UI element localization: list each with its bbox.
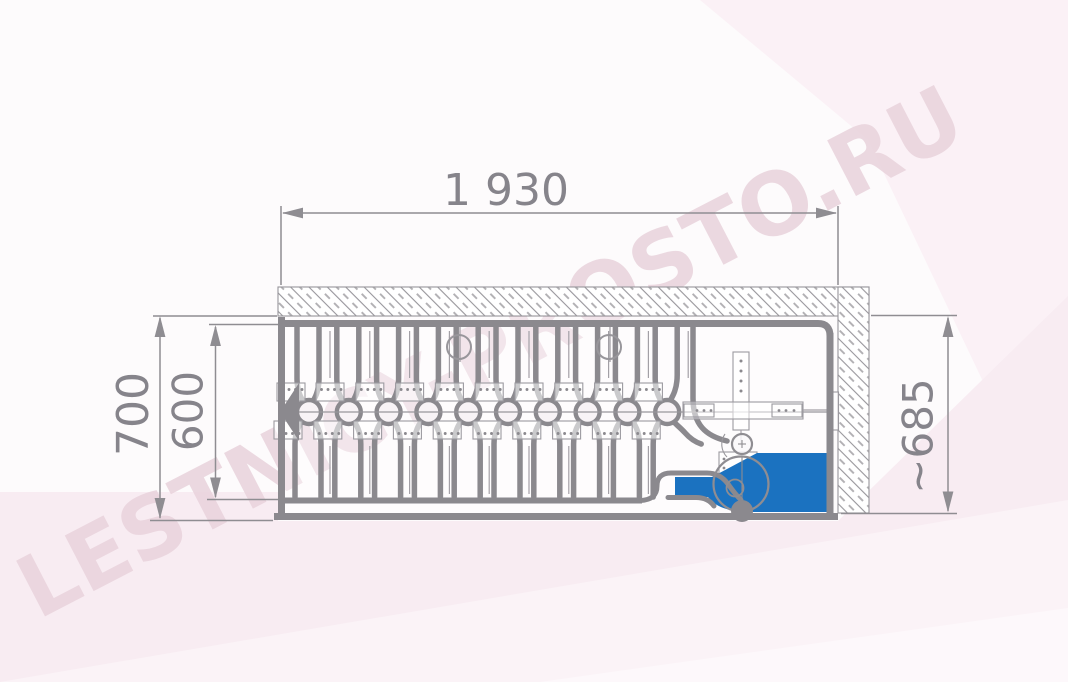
rivet-dot	[565, 388, 568, 391]
rivet-dot	[404, 432, 407, 435]
rivet-dot	[479, 388, 482, 391]
rivet-dot	[320, 388, 323, 391]
rivet-dot	[785, 409, 788, 412]
rivet-dot	[366, 388, 369, 391]
step-plate	[396, 383, 424, 401]
rivet-dot	[526, 388, 529, 391]
rivet-dot	[439, 388, 442, 391]
rivet-dot	[616, 432, 619, 435]
rivet-dot	[457, 432, 460, 435]
rivet-dot	[618, 388, 621, 391]
rivet-dot	[578, 388, 581, 391]
rivet-dot	[490, 432, 493, 435]
rivet-dot	[400, 388, 403, 391]
step-plate	[435, 383, 463, 401]
rivet-dot	[649, 432, 652, 435]
step-plate	[314, 421, 342, 439]
step-plate	[632, 421, 660, 439]
step-plate	[592, 421, 620, 439]
rivet-dot	[645, 388, 648, 391]
rivet-dot	[437, 432, 440, 435]
rivet-dot	[599, 388, 602, 391]
rivet-dot	[497, 432, 500, 435]
rivet-dot	[563, 432, 566, 435]
rivet-dot	[609, 432, 612, 435]
step-plate	[433, 421, 461, 439]
rivet-dot	[710, 409, 713, 412]
rivet-dot	[452, 388, 455, 391]
rivet-dot	[532, 388, 535, 391]
rivet-dot	[301, 388, 304, 391]
rivet-dot	[340, 388, 343, 391]
ladder-mechanism-drawing	[274, 287, 869, 522]
rivet-dot	[477, 432, 480, 435]
rivet-dot	[492, 388, 495, 391]
rivet-dot	[337, 432, 340, 435]
rivet-dot	[740, 360, 743, 363]
step-plate	[513, 421, 541, 439]
rivet-dot	[413, 388, 416, 391]
rivet-dot	[536, 432, 539, 435]
dim-outer-width-label: 700	[108, 372, 159, 456]
rivet-dot	[519, 388, 522, 391]
rivet-dot	[778, 409, 781, 412]
rivet-dot	[288, 388, 291, 391]
rivet-dot	[539, 388, 542, 391]
rivet-dot	[373, 388, 376, 391]
rivet-dot	[696, 409, 699, 412]
rivet-dot	[318, 432, 321, 435]
rivet-dot	[603, 432, 606, 435]
rivet-dot	[740, 380, 743, 383]
rivet-dot	[499, 388, 502, 391]
rivet-dot	[324, 432, 327, 435]
rivet-dot	[723, 467, 726, 470]
rivet-dot	[331, 432, 334, 435]
rivet-dot	[572, 388, 575, 391]
rivet-dot	[596, 432, 599, 435]
rivet-dot	[612, 388, 615, 391]
step-plate	[515, 383, 543, 401]
rivet-dot	[450, 432, 453, 435]
step-plate	[316, 383, 344, 401]
rivet-dot	[397, 432, 400, 435]
rivet-dot	[417, 432, 420, 435]
rivet-dot	[570, 432, 573, 435]
rivet-dot	[371, 432, 374, 435]
step-plate	[354, 421, 382, 439]
rivet-dot	[410, 432, 413, 435]
rivet-dot	[530, 432, 533, 435]
rivet-dot	[740, 370, 743, 373]
rivet-dot	[379, 388, 382, 391]
rivet-dot	[636, 432, 639, 435]
rivet-dot	[486, 388, 489, 391]
rivet-dot	[360, 388, 363, 391]
step-plate	[356, 383, 384, 401]
dim-length-label: 1 930	[443, 165, 569, 216]
rivet-dot	[643, 432, 646, 435]
step-plate	[553, 421, 581, 439]
rivet-dot	[605, 388, 608, 391]
ceiling-band-top-hatch	[278, 287, 869, 316]
rivet-dot	[656, 432, 659, 435]
rivet-dot	[723, 458, 726, 461]
step-plate	[475, 383, 503, 401]
diagram-canvas: LESTNICY-PROSTO.RU 1 930 700 600 ~685	[0, 0, 1068, 682]
rivet-dot	[444, 432, 447, 435]
rivet-dot	[358, 432, 361, 435]
rivet-dot	[419, 388, 422, 391]
attic-ladder-technical-drawing: LESTNICY-PROSTO.RU 1 930 700 600 ~685	[0, 0, 1068, 682]
rivet-dot	[651, 388, 654, 391]
ceiling-band-right-hatch	[838, 287, 869, 513]
rivet-dot	[559, 388, 562, 391]
rivet-dot	[459, 388, 462, 391]
rivet-dot	[576, 432, 579, 435]
step-plate	[393, 421, 421, 439]
step-plate	[595, 383, 623, 401]
rivet-dot	[523, 432, 526, 435]
rivet-dot	[793, 409, 796, 412]
rivet-dot	[740, 390, 743, 393]
rivet-dot	[638, 388, 641, 391]
rivet-dot	[406, 388, 409, 391]
rivet-dot	[446, 388, 449, 391]
rivet-dot	[658, 388, 661, 391]
step-plate	[634, 383, 662, 401]
rivet-dot	[484, 432, 487, 435]
rivet-dot	[703, 409, 706, 412]
rivet-dot	[364, 432, 367, 435]
step-plate	[555, 383, 583, 401]
rivet-dot	[517, 432, 520, 435]
dim-depth-label: ~685	[894, 378, 943, 493]
dim-inner-width-label: 600	[164, 371, 213, 451]
rivet-dot	[327, 388, 330, 391]
rivet-dot	[557, 432, 560, 435]
step-plate	[473, 421, 501, 439]
rivet-dot	[377, 432, 380, 435]
rivet-dot	[333, 388, 336, 391]
